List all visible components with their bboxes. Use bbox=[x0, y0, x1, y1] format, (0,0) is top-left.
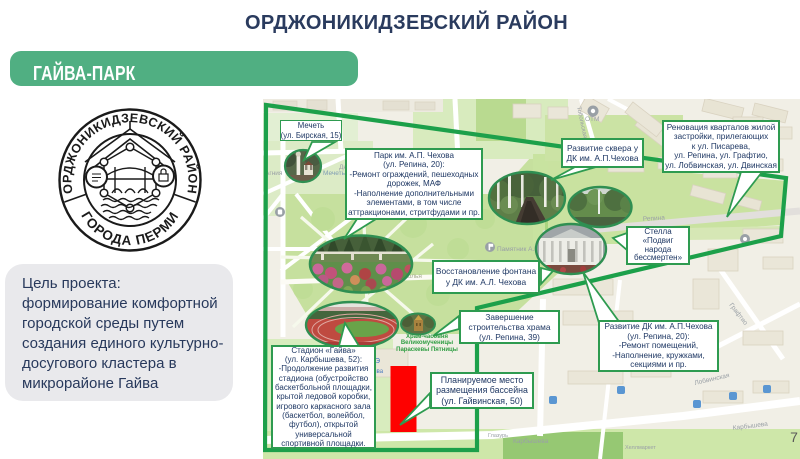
svg-text:ОТМ: ОТМ bbox=[585, 116, 599, 123]
svg-text:Глазурь: Глазурь bbox=[488, 433, 508, 439]
svg-text:Карбышева: Карбышева bbox=[513, 437, 549, 445]
svg-text:Хеллмаркет: Хеллмаркет bbox=[625, 445, 656, 451]
svg-text:Памятник А.П.: Памятник А.П. bbox=[497, 246, 541, 253]
svg-text:Мечеть: Мечеть bbox=[323, 170, 346, 177]
